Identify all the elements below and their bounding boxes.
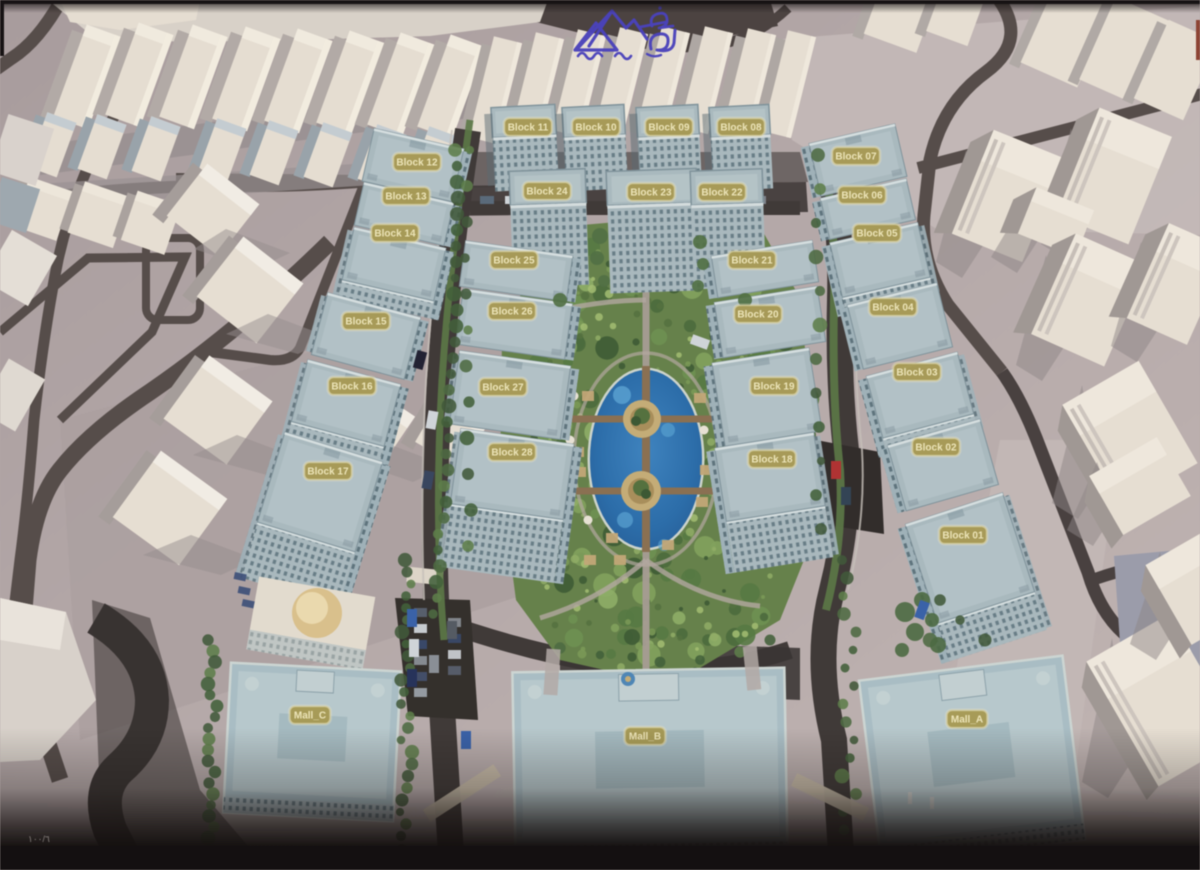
svg-text:Block 05: Block 05 <box>856 229 898 240</box>
svg-text:Block 03: Block 03 <box>896 368 938 379</box>
svg-text:Block 01: Block 01 <box>942 531 984 542</box>
svg-text:Block 10: Block 10 <box>575 123 617 134</box>
svg-text:Block 07: Block 07 <box>835 152 877 163</box>
svg-text:Block 23: Block 23 <box>630 188 672 199</box>
svg-text:Block 27: Block 27 <box>482 383 524 394</box>
svg-text:١٠٠/٦: ١٠٠/٦ <box>28 834 50 844</box>
svg-text:Block 08: Block 08 <box>720 123 762 134</box>
svg-text:Block 15: Block 15 <box>345 317 387 328</box>
svg-text:Mall_A: Mall_A <box>951 715 983 726</box>
svg-text:Block 13: Block 13 <box>385 192 427 203</box>
svg-text:Block 22: Block 22 <box>701 188 743 199</box>
svg-text:Block 17: Block 17 <box>307 467 349 478</box>
svg-text:Block 04: Block 04 <box>872 303 914 314</box>
svg-text:Block 26: Block 26 <box>491 307 533 318</box>
svg-text:Block 02: Block 02 <box>915 443 957 454</box>
svg-text:Block 12: Block 12 <box>396 158 438 169</box>
svg-text:Block 19: Block 19 <box>753 382 795 393</box>
svg-text:Block 28: Block 28 <box>491 448 533 459</box>
svg-text:Block 24: Block 24 <box>526 187 568 198</box>
svg-text:Block 18: Block 18 <box>751 455 793 466</box>
svg-text:Block 09: Block 09 <box>648 123 690 134</box>
svg-text:Block 21: Block 21 <box>731 256 773 267</box>
svg-text:Block 20: Block 20 <box>737 310 779 321</box>
svg-text:Mall_C: Mall_C <box>294 711 326 722</box>
svg-text:Block 11: Block 11 <box>508 123 549 134</box>
svg-text:Block 14: Block 14 <box>374 229 416 240</box>
svg-text:Block 16: Block 16 <box>331 382 373 393</box>
svg-text:Block 25: Block 25 <box>493 256 535 267</box>
svg-text:Block 06: Block 06 <box>841 191 883 202</box>
